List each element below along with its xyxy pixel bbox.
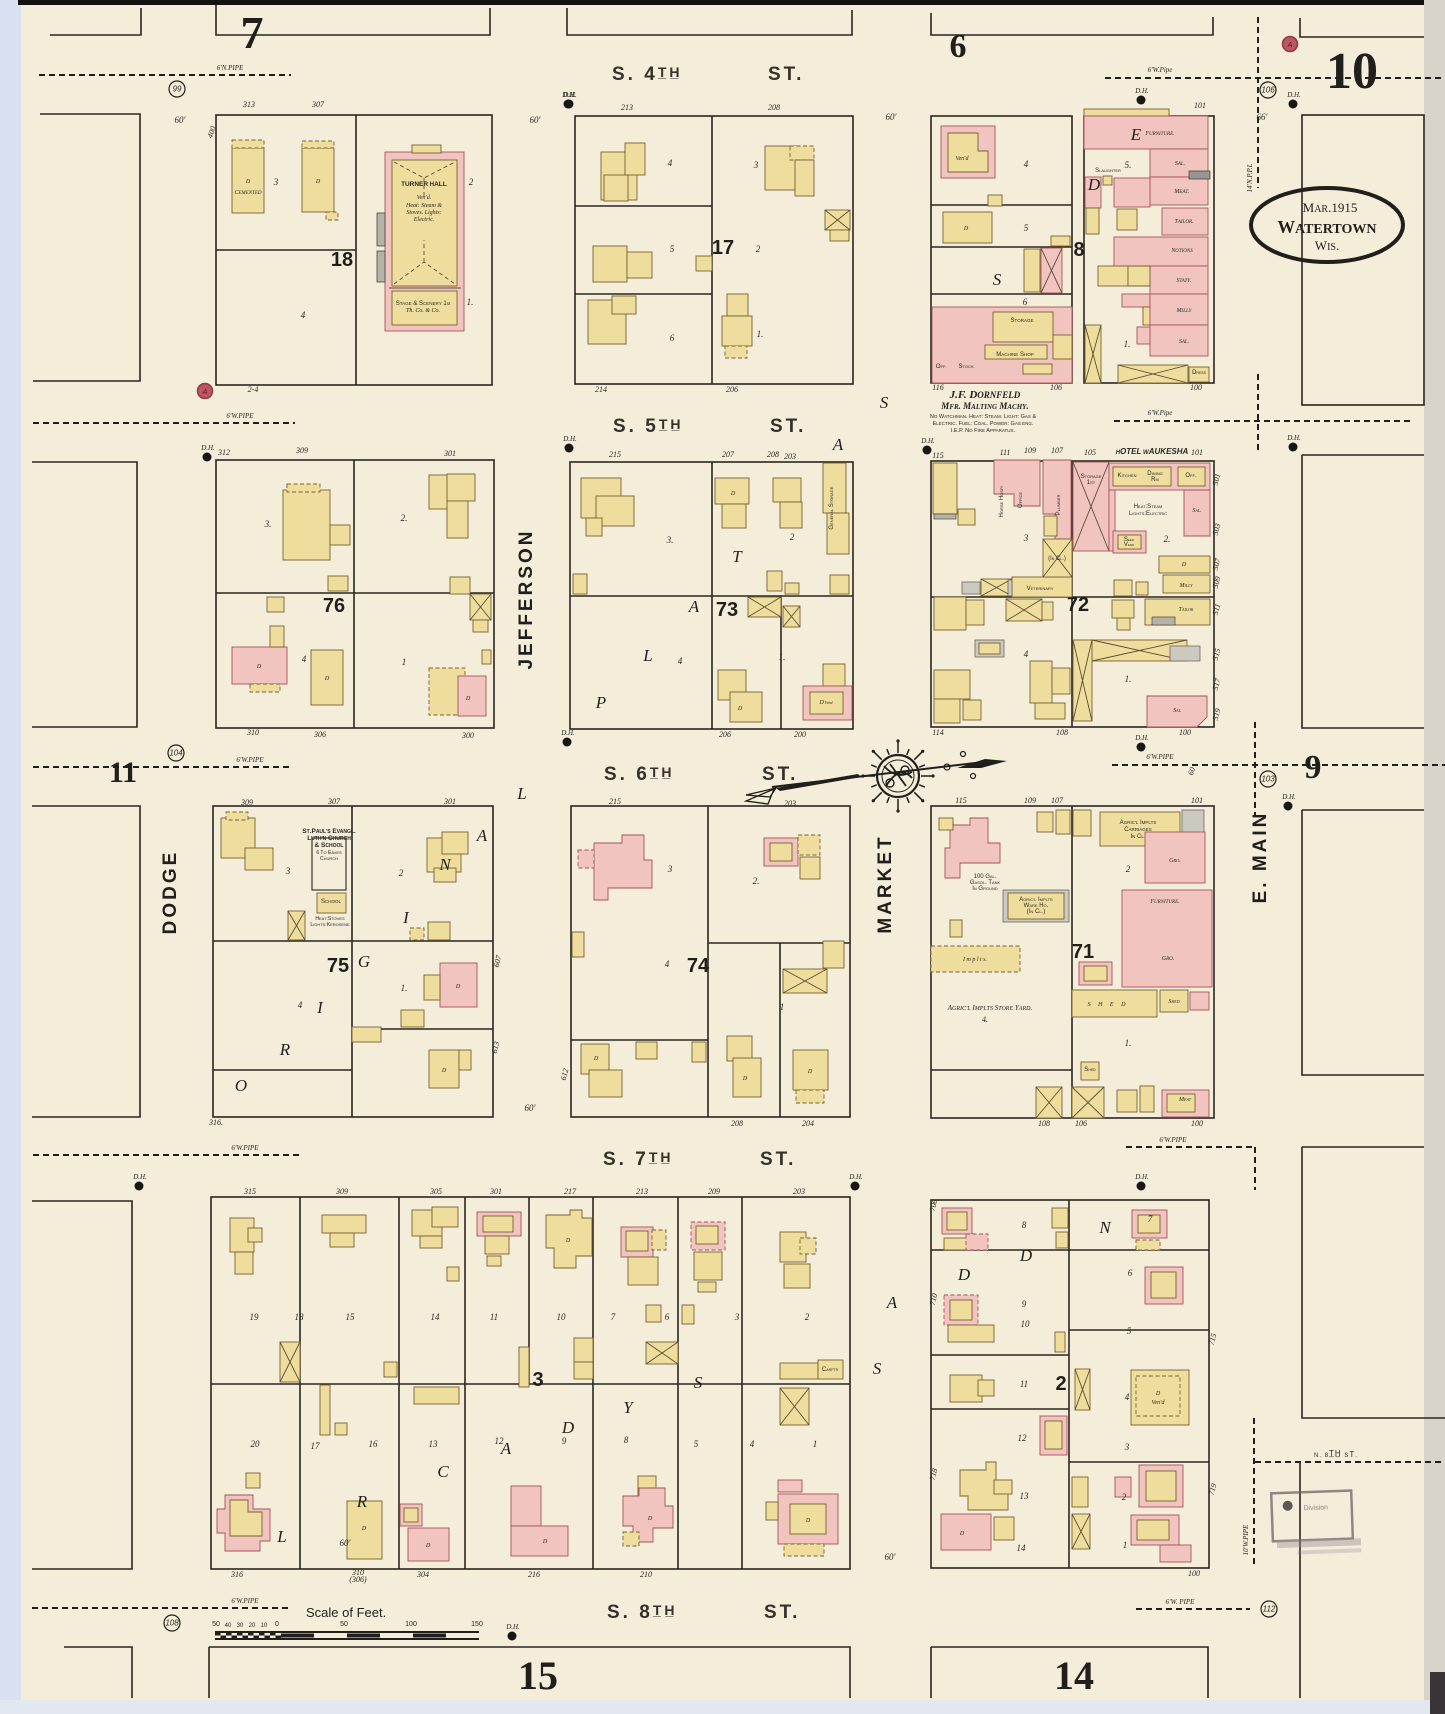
svg-text:Th. Co. & Co.: Th. Co. & Co. <box>406 308 440 314</box>
svg-text:101: 101 <box>1191 448 1203 457</box>
svg-text:200: 200 <box>794 730 806 739</box>
svg-text:103: 103 <box>1261 775 1275 784</box>
svg-text:Stoves. Lights:: Stoves. Lights: <box>406 210 441 216</box>
svg-text:18: 18 <box>295 1312 305 1322</box>
svg-text:203: 203 <box>784 452 796 461</box>
svg-text:50: 50 <box>340 1621 348 1628</box>
svg-text:A: A <box>688 597 700 616</box>
svg-text:6′W.PIPE: 6′W.PIPE <box>231 1144 259 1152</box>
svg-text:D.H.: D.H. <box>1286 434 1301 442</box>
svg-text:150: 150 <box>471 1621 483 1628</box>
svg-text:2: 2 <box>1126 864 1131 874</box>
svg-text:A: A <box>500 1439 512 1458</box>
svg-text:100: 100 <box>1190 383 1202 392</box>
svg-text:11: 11 <box>1020 1379 1028 1389</box>
svg-text:108: 108 <box>165 1619 179 1628</box>
svg-text:13: 13 <box>1020 1491 1030 1501</box>
svg-text:AGRIC'L IMPLTS STORE YARD.: AGRIC'L IMPLTS STORE YARD. <box>947 1004 1033 1012</box>
svg-text:20: 20 <box>249 1623 256 1629</box>
svg-text:Ven′d: Ven′d <box>1152 1400 1166 1406</box>
svg-text:S: S <box>880 393 889 412</box>
svg-text:D: D <box>957 1265 971 1284</box>
svg-text:305: 305 <box>429 1187 442 1196</box>
svg-text:115: 115 <box>932 451 943 460</box>
svg-text:E. MAIN: E. MAIN <box>1250 811 1271 904</box>
svg-text:203: 203 <box>784 799 796 808</box>
svg-text:D: D <box>737 706 743 712</box>
svg-text:D: D <box>647 1516 653 1522</box>
svg-text:209: 209 <box>708 1187 720 1196</box>
svg-text:WIS.: WIS. <box>1315 238 1339 253</box>
svg-text:106: 106 <box>1075 1119 1087 1128</box>
svg-text:MILLY: MILLY <box>1176 308 1193 314</box>
svg-text:LUTH'N CHURCH: LUTH'N CHURCH <box>307 835 351 842</box>
svg-text:3.: 3. <box>264 519 272 529</box>
svg-text:D.H.: D.H. <box>920 437 935 445</box>
svg-text:3: 3 <box>753 160 759 170</box>
svg-text:N: N <box>1098 1218 1112 1237</box>
svg-text:101: 101 <box>1194 101 1206 110</box>
svg-text:D: D <box>256 664 262 670</box>
svg-text:HOTEL WAUKESHA: HOTEL WAUKESHA <box>1116 447 1189 456</box>
svg-text:(IN CL.): (IN CL.) <box>1027 909 1045 915</box>
svg-text:215: 215 <box>609 797 621 806</box>
svg-text:213: 213 <box>636 1187 648 1196</box>
svg-text:FURNITURE.: FURNITURE. <box>1149 899 1179 905</box>
svg-text:GRO.: GRO. <box>1162 956 1175 962</box>
svg-text:N: N <box>438 855 452 874</box>
svg-text:Scale of Feet.: Scale of Feet. <box>306 1605 386 1620</box>
svg-text:1.: 1. <box>779 652 786 662</box>
svg-text:316: 316 <box>230 1570 243 1579</box>
svg-text:6: 6 <box>665 1312 670 1322</box>
svg-text:D: D <box>1155 1391 1161 1397</box>
svg-text:10′W.PIPE: 10′W.PIPE <box>1242 1524 1250 1555</box>
svg-text:301: 301 <box>443 449 456 458</box>
svg-text:MARKET: MARKET <box>875 834 896 933</box>
svg-text:D.H.: D.H. <box>1134 87 1149 95</box>
svg-text:NOTIONS: NOTIONS <box>1170 248 1193 254</box>
svg-text:1.: 1. <box>1124 339 1131 349</box>
svg-text:12: 12 <box>1018 1433 1028 1443</box>
svg-text:D: D <box>805 1518 811 1524</box>
svg-text:5: 5 <box>670 244 675 254</box>
svg-text:203: 203 <box>793 1187 805 1196</box>
svg-text:S: S <box>873 1359 882 1378</box>
svg-text:109: 109 <box>1024 796 1036 805</box>
svg-text:Electric.: Electric. <box>413 217 435 223</box>
svg-text:76: 76 <box>323 595 345 617</box>
svg-text:S: S <box>993 270 1002 289</box>
svg-text:100: 100 <box>1179 728 1191 737</box>
svg-text:105: 105 <box>1084 448 1096 457</box>
svg-text:3: 3 <box>532 1369 543 1391</box>
svg-text:208: 208 <box>731 1119 743 1128</box>
svg-text:315: 315 <box>243 1187 256 1196</box>
svg-text:ST.: ST. <box>764 1602 800 1623</box>
svg-text:6: 6 <box>950 28 967 65</box>
svg-text:D: D <box>542 1539 548 1545</box>
svg-text:4: 4 <box>298 1000 303 1010</box>
svg-text:3: 3 <box>1023 533 1029 543</box>
svg-text:18: 18 <box>331 249 353 271</box>
svg-text:4.: 4. <box>982 1015 988 1024</box>
svg-text:6′W.Pipe: 6′W.Pipe <box>1148 66 1173 74</box>
svg-text:1.: 1. <box>757 329 764 339</box>
svg-text:14: 14 <box>431 1312 441 1322</box>
svg-text:2.: 2. <box>401 513 408 523</box>
svg-text:4: 4 <box>302 654 307 664</box>
svg-text:3: 3 <box>1124 1442 1130 1452</box>
svg-text:7: 7 <box>241 7 264 58</box>
svg-text:D: D <box>1181 562 1187 568</box>
svg-text:Y: Y <box>623 1398 634 1417</box>
svg-text:0: 0 <box>275 1621 279 1628</box>
svg-text:17: 17 <box>712 237 734 259</box>
svg-text:216: 216 <box>528 1570 540 1579</box>
svg-text:L: L <box>642 646 652 665</box>
svg-text:14: 14 <box>1054 1653 1094 1698</box>
svg-text:2-4: 2-4 <box>248 385 259 394</box>
svg-text:7: 7 <box>611 1312 616 1322</box>
svg-text:2: 2 <box>469 177 474 187</box>
svg-text:60′: 60′ <box>530 115 542 125</box>
svg-text:5: 5 <box>1127 1326 1132 1336</box>
svg-text:D: D <box>959 1531 965 1537</box>
svg-text:1.: 1. <box>401 983 408 993</box>
svg-text:SAL.: SAL. <box>1175 161 1185 167</box>
svg-text:1: 1 <box>1123 1540 1128 1550</box>
svg-text:JEFFERSON: JEFFERSON <box>516 528 537 669</box>
svg-text:D.H.: D.H. <box>562 435 577 443</box>
svg-text:1: 1 <box>780 1002 785 1012</box>
svg-text:(IN CL.): (IN CL.) <box>1048 556 1066 562</box>
svg-text:4: 4 <box>668 158 673 168</box>
svg-text:10: 10 <box>1021 1319 1031 1329</box>
svg-text:Division: Division <box>1303 1504 1328 1512</box>
svg-text:213: 213 <box>621 103 633 112</box>
svg-text:4: 4 <box>1125 1392 1130 1402</box>
svg-text:60′: 60′ <box>886 112 898 122</box>
svg-text:101: 101 <box>1191 796 1203 805</box>
svg-text:3: 3 <box>667 864 673 874</box>
svg-text:2: 2 <box>1122 1492 1127 1502</box>
svg-text:S H E D: S H E D <box>1088 1002 1129 1008</box>
svg-text:17: 17 <box>311 1441 321 1451</box>
svg-text:109: 109 <box>1024 446 1036 455</box>
svg-text:4: 4 <box>665 959 670 969</box>
svg-text:60′: 60′ <box>175 115 187 125</box>
svg-text:204: 204 <box>802 1119 814 1128</box>
svg-text:D: D <box>455 984 461 990</box>
svg-text:206: 206 <box>719 730 731 739</box>
svg-text:MAR.1915: MAR.1915 <box>1303 200 1358 215</box>
svg-text:99: 99 <box>173 85 182 94</box>
svg-text:208: 208 <box>767 450 779 459</box>
svg-text:CEMENTED: CEMENTED <box>234 190 261 196</box>
svg-text:301: 301 <box>443 797 456 806</box>
svg-text:Ven′d: Ven′d <box>956 156 970 162</box>
svg-text:15: 15 <box>518 1653 558 1698</box>
svg-text:8: 8 <box>624 1435 629 1445</box>
svg-text:1: 1 <box>402 657 407 667</box>
svg-text:214: 214 <box>595 385 607 394</box>
svg-text:20: 20 <box>251 1439 261 1449</box>
svg-text:73: 73 <box>716 599 738 621</box>
svg-text:313: 313 <box>242 100 255 109</box>
svg-text:TAILOR.: TAILOR. <box>1174 219 1193 225</box>
svg-text:6′W.PIPE: 6′W.PIPE <box>236 756 264 764</box>
svg-text:6′W.PIPE: 6′W.PIPE <box>231 1597 259 1605</box>
svg-text:9: 9 <box>562 1436 567 1446</box>
svg-text:116: 116 <box>932 383 943 392</box>
svg-text:2: 2 <box>399 868 404 878</box>
svg-text:13: 13 <box>429 1439 439 1449</box>
svg-text:50: 50 <box>212 1621 220 1628</box>
svg-text:4: 4 <box>1024 159 1029 169</box>
svg-text:106: 106 <box>1050 383 1062 392</box>
svg-text:7: 7 <box>1148 1214 1153 1224</box>
svg-text:D.H.: D.H. <box>132 1173 147 1181</box>
svg-text:114: 114 <box>932 728 943 737</box>
svg-text:6: 6 <box>670 333 675 343</box>
svg-text:L: L <box>276 1527 286 1546</box>
svg-text:D.H.: D.H. <box>1134 734 1149 742</box>
svg-text:210: 210 <box>640 1570 652 1579</box>
svg-text:D: D <box>1087 175 1101 194</box>
svg-text:1.: 1. <box>467 297 474 307</box>
svg-text:19: 19 <box>250 1312 260 1322</box>
svg-text:207: 207 <box>722 450 735 459</box>
svg-text:D: D <box>441 1068 447 1074</box>
svg-text:215: 215 <box>609 450 621 459</box>
svg-text:15: 15 <box>346 1312 356 1322</box>
svg-text:301: 301 <box>489 1187 502 1196</box>
svg-text:217: 217 <box>564 1187 577 1196</box>
svg-text:1: 1 <box>813 1439 818 1449</box>
svg-text:60′: 60′ <box>885 1552 897 1562</box>
svg-text:1.: 1. <box>1125 674 1132 684</box>
svg-text:60′: 60′ <box>525 1103 537 1113</box>
svg-text:5: 5 <box>1024 223 1029 233</box>
svg-text:J.F. DORNFELD: J.F. DORNFELD <box>949 389 1021 401</box>
svg-text:309: 309 <box>335 1187 348 1196</box>
svg-text:100: 100 <box>1191 1119 1203 1128</box>
svg-text:3: 3 <box>285 866 291 876</box>
svg-text:4: 4 <box>301 310 306 320</box>
svg-text:9: 9 <box>1305 749 1322 786</box>
svg-text:D: D <box>565 1238 571 1244</box>
svg-text:2: 2 <box>805 1312 810 1322</box>
svg-text:D: D <box>742 1076 748 1082</box>
svg-text:D: D <box>730 491 736 497</box>
svg-text:3.: 3. <box>666 535 674 545</box>
svg-text:G: G <box>358 952 370 971</box>
svg-text:107: 107 <box>1051 796 1064 805</box>
svg-text:4: 4 <box>750 1439 755 1449</box>
svg-text:310: 310 <box>246 728 259 737</box>
svg-text:104: 104 <box>169 749 183 758</box>
svg-text:A: A <box>886 1293 898 1312</box>
svg-text:11: 11 <box>109 756 137 789</box>
svg-text:6′W. PIPE: 6′W. PIPE <box>1166 1598 1196 1606</box>
svg-text:40: 40 <box>225 1623 232 1629</box>
svg-text:316.: 316. <box>208 1118 223 1127</box>
svg-text:100: 100 <box>405 1621 417 1628</box>
svg-text:ST.: ST. <box>760 1149 796 1170</box>
svg-text:1.: 1. <box>1125 1038 1132 1048</box>
svg-text:6′W.Pipe: 6′W.Pipe <box>1148 409 1173 417</box>
svg-text:I m p l t s.: I m p l t s. <box>962 957 987 963</box>
svg-text:A: A <box>1287 42 1293 49</box>
svg-text:MFR. MALTING MACHY.: MFR. MALTING MACHY. <box>940 401 1028 411</box>
svg-text:3: 3 <box>273 177 279 187</box>
svg-text:14: 14 <box>1017 1543 1027 1553</box>
svg-text:16: 16 <box>369 1439 379 1449</box>
svg-text:74: 74 <box>687 955 710 977</box>
svg-text:4: 4 <box>678 656 683 666</box>
svg-text:307: 307 <box>311 100 325 109</box>
svg-text:60′: 60′ <box>340 1538 352 1548</box>
svg-text:ST.: ST. <box>770 416 806 437</box>
svg-text:9: 9 <box>1022 1299 1027 1309</box>
svg-text:111: 111 <box>1000 448 1011 457</box>
svg-text:6′W.PIPE: 6′W.PIPE <box>1159 1136 1187 1144</box>
svg-text:6′N.PIPE: 6′N.PIPE <box>217 64 244 72</box>
svg-text:75: 75 <box>327 955 349 977</box>
svg-text:10: 10 <box>261 1623 268 1629</box>
svg-text:6: 6 <box>1128 1268 1133 1278</box>
svg-text:D.H.: D.H. <box>1281 793 1296 801</box>
svg-text:112: 112 <box>1263 1605 1276 1614</box>
svg-text:D.H.: D.H. <box>562 91 577 99</box>
svg-text:A: A <box>202 389 208 396</box>
svg-text:11: 11 <box>490 1312 498 1322</box>
svg-text:Ven′d.: Ven′d. <box>417 195 431 201</box>
svg-text:ST.PAUL'S EVANGL.: ST.PAUL'S EVANGL. <box>302 828 356 835</box>
svg-text:MEAT.: MEAT. <box>1173 189 1189 195</box>
svg-text:D.H.: D.H. <box>505 1623 520 1631</box>
svg-text:307: 307 <box>327 797 341 806</box>
svg-text:A: A <box>832 435 844 454</box>
svg-text:14′N.P.P.L: 14′N.P.P.L <box>1246 163 1254 192</box>
svg-text:206: 206 <box>726 385 738 394</box>
svg-text:100: 100 <box>1188 1569 1200 1578</box>
svg-text:ST.: ST. <box>762 764 798 785</box>
svg-text:108: 108 <box>1056 728 1068 737</box>
svg-text:D: D <box>245 179 251 185</box>
svg-text:L: L <box>516 784 526 803</box>
svg-text:S: S <box>694 1373 703 1392</box>
svg-text:30: 30 <box>237 1623 244 1629</box>
svg-text:6′W.PIPE: 6′W.PIPE <box>1146 753 1174 761</box>
svg-text:309: 309 <box>295 446 308 455</box>
svg-text:O: O <box>235 1076 247 1095</box>
svg-text:2: 2 <box>790 532 795 542</box>
svg-text:C: C <box>437 1462 449 1481</box>
svg-text:R: R <box>356 1492 368 1511</box>
svg-text:106: 106 <box>1261 86 1275 95</box>
svg-text:R: R <box>279 1040 291 1059</box>
svg-text:T: T <box>732 547 743 566</box>
svg-text:TURNER HALL: TURNER HALL <box>401 181 446 188</box>
svg-text:309: 309 <box>240 798 253 807</box>
svg-text:D: D <box>361 1526 367 1532</box>
svg-text:D: D <box>324 676 330 682</box>
svg-text:304: 304 <box>416 1570 429 1579</box>
svg-text:D: D <box>593 1056 599 1062</box>
svg-text:D: D <box>465 696 471 702</box>
svg-text:D: D <box>561 1418 575 1437</box>
svg-text:STATY.: STATY. <box>1176 278 1191 284</box>
svg-text:8: 8 <box>1073 239 1084 261</box>
svg-text:A: A <box>476 826 488 845</box>
svg-text:3: 3 <box>734 1312 740 1322</box>
svg-text:312: 312 <box>217 448 230 457</box>
svg-text:D.H.: D.H. <box>848 1173 863 1181</box>
svg-text:115: 115 <box>955 796 966 805</box>
svg-text:FURNITURE.: FURNITURE. <box>1144 131 1174 137</box>
svg-text:10: 10 <box>557 1312 567 1322</box>
svg-text:2.: 2. <box>753 876 760 886</box>
svg-text:D.H.: D.H. <box>1134 1173 1149 1181</box>
svg-text:2: 2 <box>756 244 761 254</box>
svg-text:108: 108 <box>1038 1119 1050 1128</box>
svg-text:D.H.: D.H. <box>560 729 575 737</box>
svg-text:& SCHOOL: & SCHOOL <box>315 842 344 849</box>
svg-text:D: D <box>963 226 969 232</box>
svg-text:6: 6 <box>1023 297 1028 307</box>
svg-text:5: 5 <box>694 1439 699 1449</box>
svg-text:D: D <box>425 1543 431 1549</box>
svg-text:71: 71 <box>1072 941 1094 963</box>
svg-text:DODGE: DODGE <box>160 850 181 935</box>
svg-text:(306): (306) <box>349 1575 367 1584</box>
svg-text:4: 4 <box>1024 649 1029 659</box>
svg-text:D: D <box>1019 1246 1033 1265</box>
svg-text:5.: 5. <box>1125 160 1132 170</box>
svg-text:10: 10 <box>1326 43 1378 100</box>
svg-text:ST.: ST. <box>768 64 804 85</box>
svg-text:D.H.: D.H. <box>200 444 215 452</box>
svg-text:306: 306 <box>313 730 326 739</box>
svg-text:D.H.: D.H. <box>1286 91 1301 99</box>
svg-text:SAL.: SAL. <box>1179 339 1189 345</box>
svg-text:Heat: Steam &: Heat: Steam & <box>405 203 442 209</box>
svg-text:107: 107 <box>1051 446 1064 455</box>
svg-text:208: 208 <box>768 103 780 112</box>
svg-text:D: D <box>807 1069 813 1075</box>
svg-text:2.: 2. <box>1164 534 1171 544</box>
svg-text:6′W.PIPE: 6′W.PIPE <box>226 412 254 420</box>
svg-text:300: 300 <box>461 731 474 740</box>
svg-text:P: P <box>595 693 606 712</box>
svg-text:D: D <box>315 179 321 185</box>
svg-text:2: 2 <box>1055 1373 1066 1395</box>
svg-text:E: E <box>1130 125 1142 144</box>
svg-text:8: 8 <box>1022 1220 1027 1230</box>
